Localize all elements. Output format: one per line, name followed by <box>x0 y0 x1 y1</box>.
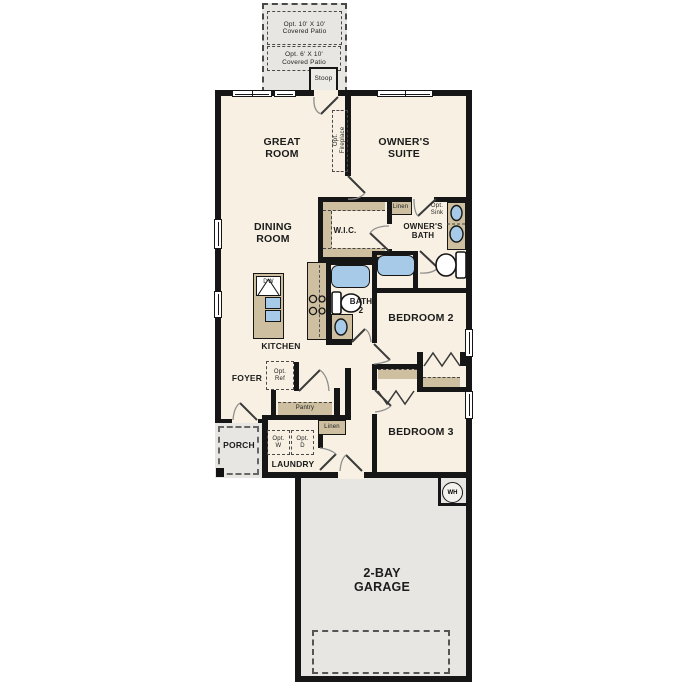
foyer-label: FOYER <box>224 373 270 385</box>
owners-suite-label: OWNER'S SUITE <box>370 134 438 164</box>
window <box>274 90 296 97</box>
bedroom3-label: BEDROOM 3 <box>379 426 463 439</box>
opt-dryer-label: Opt. D <box>291 430 314 455</box>
laundry-label: LAUNDRY <box>264 459 322 471</box>
great-room-label: GREAT ROOM <box>248 134 316 164</box>
linen-label: Linen <box>318 420 346 435</box>
owners-bath-label: OWNER'S BATH <box>394 220 452 244</box>
window <box>377 90 433 97</box>
garage-label: 2-BAY GARAGE <box>332 564 432 596</box>
dishwasher-label: DW <box>256 276 281 288</box>
bedroom2-label: BEDROOM 2 <box>379 312 463 325</box>
opt-sink-label: Opt. Sink <box>427 202 447 217</box>
pantry-label: Pantry <box>278 402 332 415</box>
stoop-label: Stoop <box>309 67 338 91</box>
porch-post <box>216 468 224 477</box>
window <box>232 90 272 97</box>
cooktop-icon <box>309 295 325 314</box>
wic-label: W.I.C. <box>328 226 362 237</box>
opt-refrigerator-label: Opt. Ref <box>266 361 294 390</box>
patio-upper-label: Opt. 10' X 10' Covered Patio <box>267 11 342 45</box>
opt-fireplace-label: Opt. Fireplace <box>332 110 348 170</box>
water-heater-icon: WH <box>442 482 463 503</box>
bifold-doors <box>378 353 460 404</box>
linen-label: Linen <box>389 199 412 215</box>
kitchen-label: KITCHEN <box>247 340 315 353</box>
window <box>465 329 473 357</box>
window <box>465 391 473 419</box>
window <box>214 219 222 249</box>
bath2-label: BATH 2 <box>346 295 376 319</box>
window <box>214 291 222 318</box>
porch-label: PORCH <box>219 440 259 452</box>
floor-plan: Opt. 10' X 10' Covered Patio Opt. 6' X 1… <box>0 0 687 687</box>
dining-room-label: DINING ROOM <box>240 220 306 248</box>
opt-washer-label: Opt. W <box>267 430 290 455</box>
